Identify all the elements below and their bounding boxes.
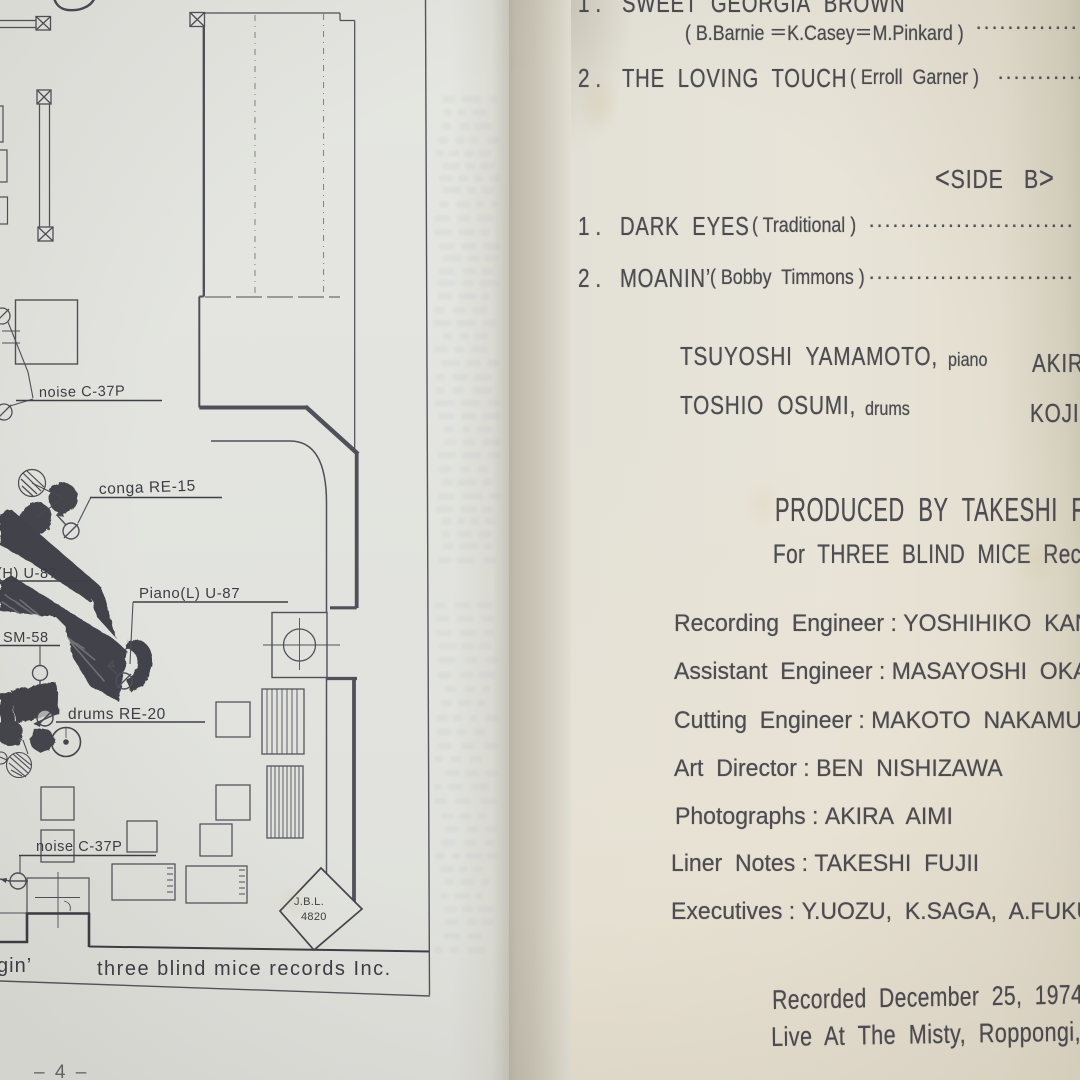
svg-text:Piano(L) U-87: Piano(L) U-87 — [139, 585, 240, 602]
svg-text:SM-58: SM-58 — [3, 630, 49, 646]
svg-text:– 4 –: – 4 – — [34, 1062, 89, 1080]
svg-text:noise C-37P: noise C-37P — [36, 839, 122, 855]
svg-text:noise C-37P: noise C-37P — [39, 383, 126, 401]
svg-text:conga RE-15: conga RE-15 — [99, 478, 197, 498]
svg-text:drums RE-20: drums RE-20 — [68, 706, 166, 723]
svg-text:gin’: gin’ — [0, 955, 32, 977]
svg-text:(H) U-87: (H) U-87 — [0, 566, 57, 582]
svg-text:three blind mice records Inc.: three blind mice records Inc. — [97, 958, 392, 980]
